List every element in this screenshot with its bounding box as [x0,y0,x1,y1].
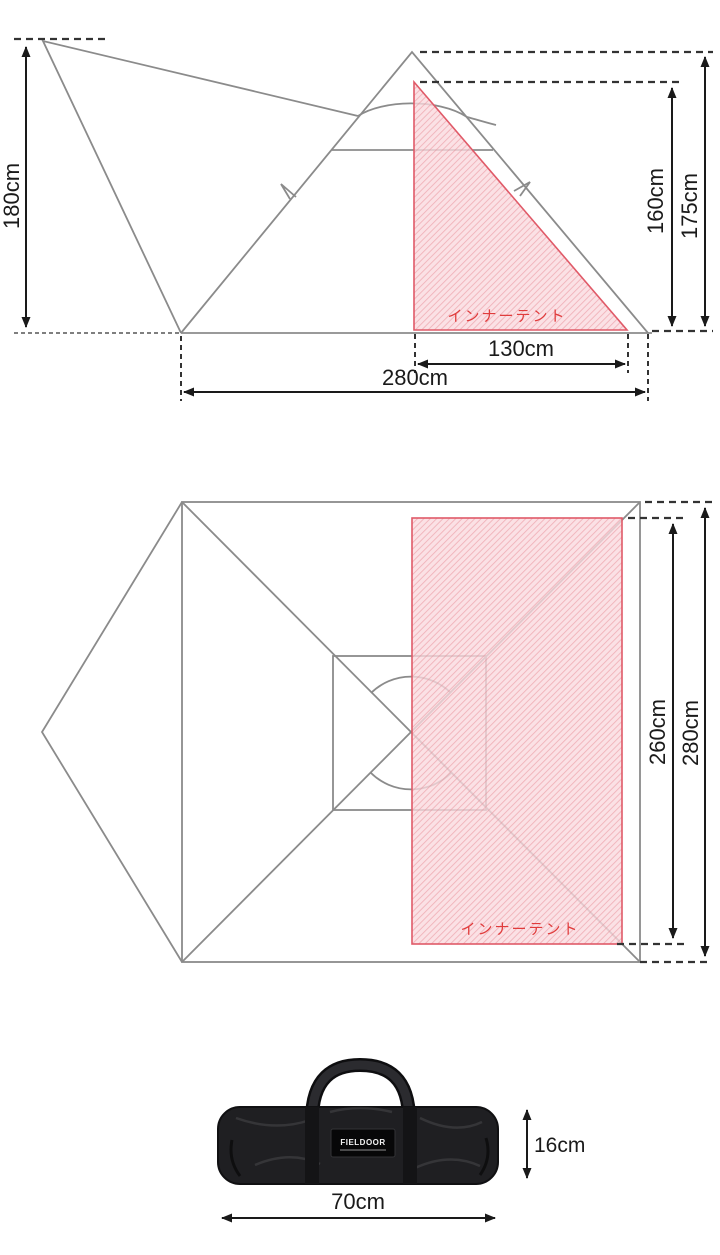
dim-label-280-side: 280cm [382,365,448,390]
dim-label-160: 160cm [643,168,668,234]
bag-strap-left [305,1107,319,1184]
dim-bag-length: 70cm [222,1189,495,1218]
side-view-diagram: インナーテント 180cm 160cm 175cm 130cm [0,39,713,401]
bag-strap-right [403,1107,417,1184]
bag-logo-text: FIELDOOR [340,1138,385,1147]
dim-label-16: 16cm [534,1134,585,1157]
dim-base-width: 280cm [184,365,645,392]
inner-tent-top-label: インナーテント [460,921,579,938]
tarp-top-outline [42,502,182,962]
dim-label-180: 180cm [0,163,24,229]
dim-inner-height: 160cm [643,88,672,326]
inner-tent-side-label: インナーテント [447,308,566,325]
dim-tarp-height: 180cm [0,47,26,327]
dim-inner-depth: 260cm [645,524,673,938]
dim-label-175: 175cm [677,173,702,239]
dim-label-130: 130cm [488,336,554,361]
inner-tent-top-area [412,518,622,944]
dim-outer-depth: 280cm [678,508,705,956]
dim-inner-width: 130cm [418,336,625,364]
dim-label-280-top: 280cm [678,700,703,766]
diagram-canvas: インナーテント 180cm 160cm 175cm 130cm [0,0,720,1255]
dim-peak-height: 175cm [677,57,705,326]
tent-spec-diagram: インナーテント 180cm 160cm 175cm 130cm [0,0,720,1255]
dim-label-260: 260cm [645,699,670,765]
dim-label-70: 70cm [331,1189,385,1214]
top-view-diagram: インナーテント 260cm 280cm [42,502,712,962]
inner-tent-side-area [414,82,627,330]
dim-bag-height: 16cm [527,1110,585,1178]
carry-bag-image: FIELDOOR [218,1065,498,1184]
tarp-flap-outline [43,41,358,333]
carry-bag-figure: FIELDOOR 16cm 70cm [218,1065,585,1218]
